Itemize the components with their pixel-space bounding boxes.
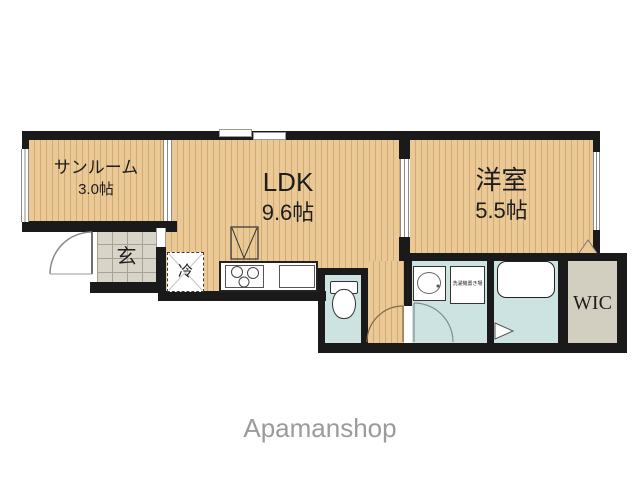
entrance-step-edge [156,228,166,247]
wall-top-left-stub [22,131,29,149]
western-right-window [593,152,600,230]
laundry-space-box: 洗濯機置き場 [450,266,485,304]
sunroom-label-group: サンルーム 3.0帖 [29,158,163,198]
wic-label: WIC [568,292,617,315]
wall-entrance-bottom [90,282,166,293]
bathtub [497,261,555,298]
floor-plan: 洗濯機置き場 サンルーム 3.0帖 LDK 9.6 [0,0,640,480]
wall-sunroom-bottom [22,221,177,232]
wall-kitchen-bottom [158,291,326,301]
entrance-label: 玄 [97,246,156,269]
wall-bottom [318,343,627,353]
ldk-top-window-right [253,132,286,140]
wall-ldk-western-top-stub [399,140,410,159]
wall-western-bottom [404,253,627,261]
ldk-top-window-left [219,129,252,137]
ldk-label-group: LDK 9.6帖 [172,168,404,225]
western-room-label-group: 洋室 5.5帖 [410,166,593,223]
wall-entrance-right-stub [156,247,166,291]
wall-bathroom-wic [558,261,568,343]
ldk-size: 9.6帖 [172,200,404,225]
washstand-basin [417,272,441,294]
sunroom-name: サンルーム [29,158,163,178]
refrigerator-label: 冷 [167,263,204,280]
kitchen-sink [279,265,315,288]
wall-toilet-right [361,268,368,343]
sunroom-size: 3.0帖 [29,181,163,198]
stove [225,265,264,288]
wall-washroom-left [404,261,412,306]
wall-toilet-left [318,268,325,343]
entrance-door-arc [50,232,92,274]
toilet-bowl [332,289,356,319]
western-room-size: 5.5帖 [410,198,593,223]
wall-wic-right [617,253,627,353]
ldk-name: LDK [172,168,404,198]
sunroom-ldk-sliding-door [163,140,172,221]
laundry-space-label: 洗濯機置き場 [452,282,482,288]
wall-top [22,131,600,140]
sunroom-left-window [21,149,29,222]
hallway-floor [368,261,404,343]
wall-washroom-bathroom [487,261,494,343]
watermark: Apamanshop [0,414,640,444]
western-room-name: 洋室 [410,166,593,196]
wall-top-right-stub [593,131,600,152]
